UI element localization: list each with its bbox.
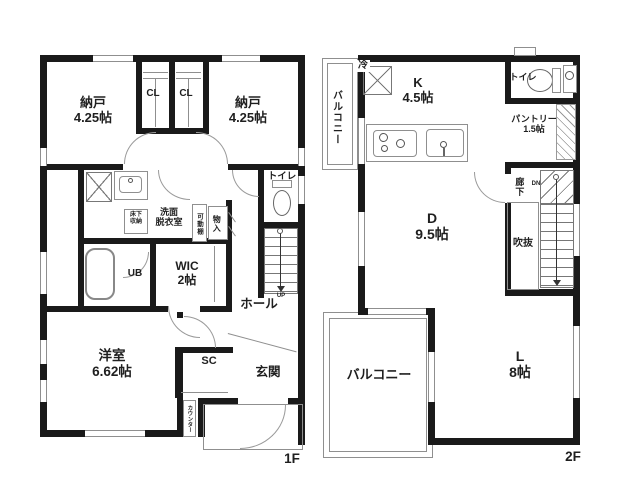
door-arc [158, 170, 190, 200]
stairs-arrow-start [553, 174, 559, 180]
window [93, 55, 133, 62]
room-label-toilet-1f: トイレ [262, 172, 302, 183]
closet-shelf-line [143, 72, 168, 73]
burner-icon [381, 145, 388, 152]
wall [203, 62, 209, 134]
room-label-western-room: 洋室 6.62帖 [60, 348, 164, 379]
room-label-bath: UB [122, 268, 148, 280]
window [85, 430, 145, 437]
wall [150, 244, 156, 306]
window [358, 212, 365, 266]
door-arc [232, 170, 259, 197]
window [428, 352, 435, 402]
window [222, 55, 260, 62]
room-label-storage-right: 納戸 4.25帖 [210, 96, 286, 126]
stairs-arrow-start [277, 228, 283, 234]
label-line: 床下 [125, 212, 147, 219]
window [358, 118, 365, 164]
entrance-step-line [228, 333, 297, 352]
room-label-cl-left: CL [139, 88, 167, 100]
shoe-closet-line [181, 392, 228, 393]
room-size: 8帖 [488, 364, 552, 380]
closet-pole-line [155, 79, 156, 127]
room-label-balcony-upper: バルコニー [330, 72, 342, 162]
room-size: 4.5帖 [388, 91, 448, 106]
window [40, 252, 47, 294]
window [368, 308, 426, 315]
room-name: 納戸 [210, 96, 286, 111]
room-label-shoe-closet: SC [194, 355, 224, 368]
wall [45, 55, 305, 62]
label-counter: カウンター [186, 403, 192, 435]
closet-shelf-line [176, 72, 201, 73]
room-name: L [488, 348, 552, 364]
window [573, 204, 580, 256]
room-size: 2帖 [158, 274, 216, 288]
room-size: 6.62帖 [60, 364, 164, 380]
wall [45, 306, 168, 312]
floorplan-canvas: 納戸 4.25帖 CL CL 納戸 4.25帖 床下 収納 洗面 脱衣室 可動棚… [0, 0, 640, 499]
room-name: WIC [158, 260, 216, 274]
faucet-stem [443, 148, 445, 156]
room-label-cl-right: CL [172, 88, 200, 100]
stairs-arrow-head [553, 280, 561, 286]
burner-icon [379, 133, 388, 142]
stairs-arrow-line [280, 232, 281, 286]
room-size: 9.5帖 [400, 226, 464, 242]
room-label-wic: WIC 2帖 [158, 260, 216, 288]
faucet-icon [565, 71, 574, 80]
door-arc [184, 316, 216, 348]
room-name: 納戸 [55, 96, 131, 111]
window [40, 148, 47, 166]
faucet-icon [128, 178, 133, 183]
room-label-entrance: 玄関 [246, 365, 290, 379]
room-size: 1.5帖 [504, 124, 564, 134]
room-label-living: L 8帖 [488, 348, 552, 380]
closet-pole-line [188, 79, 189, 127]
burner-icon [396, 139, 405, 148]
room-name: K [388, 76, 448, 91]
wall [428, 438, 580, 445]
wall [200, 306, 228, 312]
stairs-down-icon [540, 204, 574, 288]
wall [45, 164, 123, 170]
label-movable-shelf: 可動棚 [195, 207, 202, 241]
room-label-toilet-2f: トイレ [506, 72, 540, 82]
faucet-icon [440, 141, 447, 148]
stairs-arrow-head [277, 286, 285, 292]
room-size: 4.25帖 [210, 111, 286, 126]
label-stairs-up: UP [272, 293, 290, 300]
stairs-arrow-line [556, 178, 557, 280]
wall [298, 55, 305, 445]
label-stairs-down: DN [529, 181, 543, 188]
window [40, 340, 47, 364]
floor2-label: 2F [556, 449, 590, 465]
room-label-corridor: 廊下 [514, 172, 524, 202]
toilet-tank-icon [552, 68, 561, 93]
wall [505, 289, 580, 296]
room-name: 洋室 [60, 348, 164, 364]
label-line: 脱衣室 [148, 217, 190, 227]
toilet-icon [273, 190, 291, 216]
room-label-washroom: 洗面 脱衣室 [148, 207, 190, 228]
room-label-balcony-lower: バルコニー [336, 368, 422, 383]
wall [358, 55, 580, 62]
balcony-lower-inner-outline [329, 318, 427, 452]
room-name: D [400, 210, 464, 226]
room-label-small-closet: 物入 [212, 209, 221, 239]
window [298, 148, 305, 166]
label-line: 洗面 [148, 207, 190, 217]
label-refrigerator: 冷 [356, 60, 370, 72]
room-name: パントリー [504, 114, 564, 124]
stairs-up-icon [264, 228, 298, 294]
room-label-kitchen: K 4.5帖 [388, 76, 448, 106]
window [573, 326, 580, 398]
room-size: 4.25帖 [55, 111, 131, 126]
door-arc [196, 132, 228, 164]
room-label-void: 吹抜 [506, 238, 540, 250]
floor1-label: 1F [276, 451, 308, 467]
vent-bump [514, 47, 536, 56]
room-label-pantry: パントリー 1.5帖 [504, 114, 564, 135]
door-arc [124, 132, 156, 164]
wall [505, 162, 580, 168]
bathtub-icon [85, 248, 115, 300]
room-label-dining: D 9.5帖 [400, 210, 464, 242]
wall [505, 162, 511, 174]
room-label-storage-left: 納戸 4.25帖 [55, 96, 131, 126]
label-line: 収納 [125, 219, 147, 226]
door-arc [474, 172, 505, 203]
washer-icon [86, 172, 112, 202]
label-underfloor-storage: 床下 収納 [125, 212, 147, 226]
window [40, 380, 47, 402]
